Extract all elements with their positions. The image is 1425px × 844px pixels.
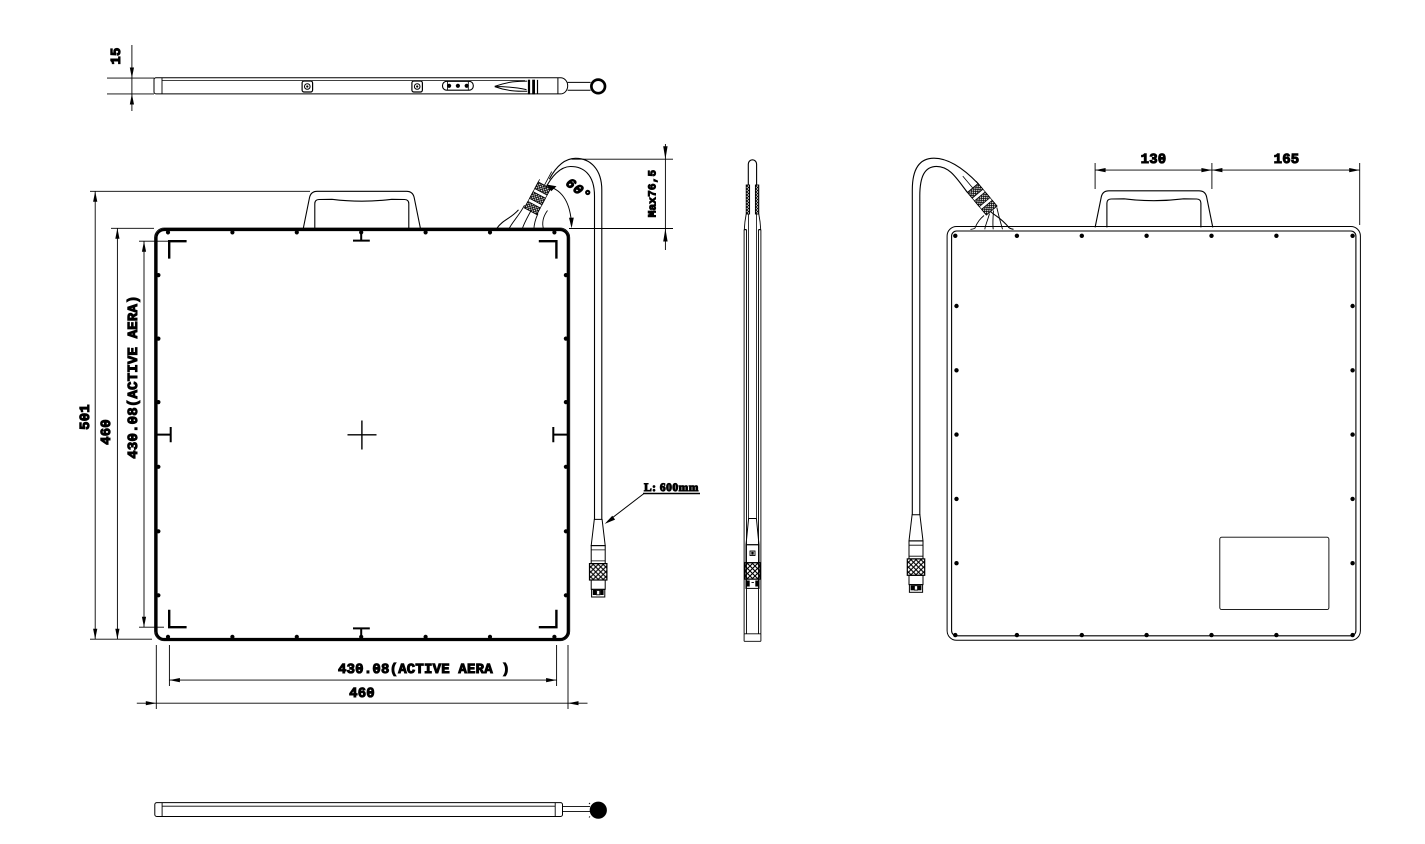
svg-text:165: 165 [1274, 152, 1300, 168]
svg-text:130: 130 [1141, 152, 1167, 168]
svg-text:Max76,5: Max76,5 [648, 169, 660, 217]
svg-text:430.08(ACTIVE AERA ): 430.08(ACTIVE AERA ) [338, 662, 510, 678]
svg-text:430.08(ACTIVE AERA): 430.08(ACTIVE AERA) [126, 295, 142, 458]
svg-text:460: 460 [99, 419, 115, 445]
svg-text:460: 460 [349, 686, 375, 702]
svg-text:L: 600mm: L: 600mm [644, 482, 699, 494]
svg-text:15: 15 [109, 47, 125, 64]
svg-text:501: 501 [78, 404, 94, 430]
